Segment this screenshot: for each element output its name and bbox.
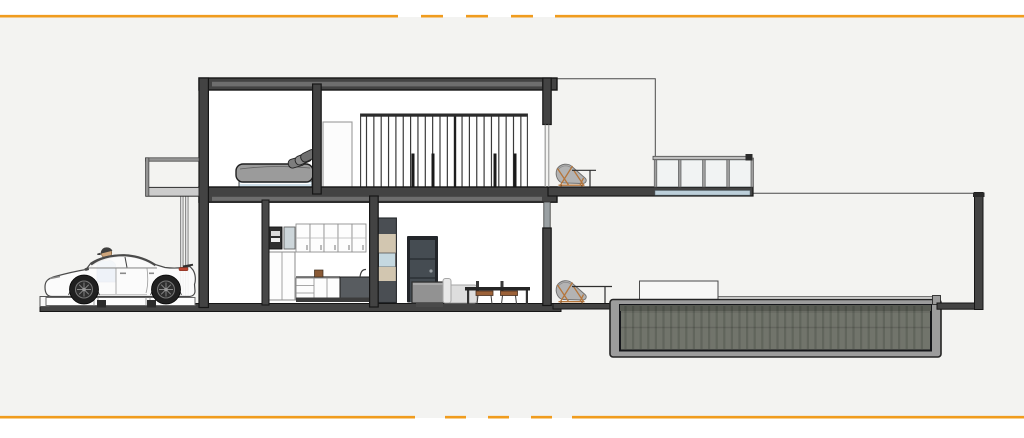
kitchen-plinth: [296, 298, 370, 303]
tower-wood-lower: [378, 267, 397, 281]
right-fence-post-cap: [973, 193, 985, 198]
dining-table-leg-left: [467, 291, 469, 305]
right-upper-wall: [543, 78, 551, 125]
wardrobe-pull: [494, 154, 497, 188]
platform-foot: [97, 300, 106, 308]
gray-island-cabinet: [412, 282, 447, 307]
wardrobe-pull: [432, 154, 435, 188]
kitchen-base-cabinets: [296, 278, 340, 300]
tower-wood-upper: [378, 234, 397, 253]
right-ground-glass-frame: [544, 202, 550, 229]
glass-front-cabinet: [284, 227, 295, 249]
coffee-maker: [315, 270, 324, 277]
entry-interior-wall: [262, 200, 269, 305]
railing-glass-panel: [657, 160, 679, 187]
balcony-rail-top: [146, 158, 200, 161]
car-door-handle: [149, 273, 154, 275]
wardrobe-pull: [514, 154, 517, 188]
railing-glass-panel: [705, 160, 727, 187]
railing-post: [654, 158, 657, 187]
railing-post: [751, 158, 754, 187]
coffee-machine-display: [271, 231, 280, 236]
bedroom-door-outline: [323, 122, 352, 188]
railing-post: [727, 158, 730, 187]
garden-ground-slab: [553, 304, 613, 310]
terrace-glass-panels: [654, 158, 753, 187]
balcony-rail-left: [146, 158, 149, 196]
door-handle: [429, 269, 432, 272]
right-fence-post: [975, 193, 984, 310]
tower-dark-base: [378, 281, 397, 303]
car-door-handle: [120, 273, 126, 275]
terrace-rail-end-cap: [746, 154, 753, 161]
tall-wood-tower: [378, 218, 397, 303]
middle-upper-wall: [313, 84, 322, 194]
island-plinth: [416, 303, 443, 307]
car-taillight: [179, 268, 188, 271]
dining-chair-seat-2: [501, 291, 518, 296]
left-wall: [199, 78, 208, 308]
coffee-machine-tray: [271, 238, 280, 242]
car-rear-wheel: [152, 275, 181, 304]
railing-glass-panel: [729, 160, 751, 187]
dark-counter-unit: [340, 277, 370, 300]
island-body: [412, 282, 447, 303]
railing-glass-panel: [681, 160, 703, 187]
tower-dark-top: [378, 218, 397, 234]
right-ground-wall: [543, 228, 551, 306]
section-drawing-canvas: [0, 0, 1024, 438]
oven-window: [379, 253, 396, 267]
platform-foot: [147, 300, 156, 308]
balcony-slab: [146, 187, 199, 196]
dining-chair-seat-1: [476, 291, 493, 296]
pool-step-outline: [640, 281, 719, 301]
car-front-wheel: [70, 275, 99, 304]
railing-post: [703, 158, 706, 187]
section-drawing: [0, 0, 1024, 438]
terrace-railing: [653, 154, 754, 187]
railing-post: [678, 158, 681, 187]
kitchen-wall: [370, 196, 379, 307]
terrace-rail-top: [653, 156, 752, 159]
dining-table-leg-right: [526, 291, 528, 305]
roof-recess: [212, 82, 542, 87]
wardrobe-top-rail: [360, 114, 528, 117]
wardrobe-pull: [412, 154, 415, 188]
hub: [82, 288, 86, 292]
sofa-arm: [443, 279, 451, 304]
terrace-glass-strip: [655, 191, 750, 196]
dining-table-top: [465, 287, 530, 291]
hub: [164, 288, 168, 292]
